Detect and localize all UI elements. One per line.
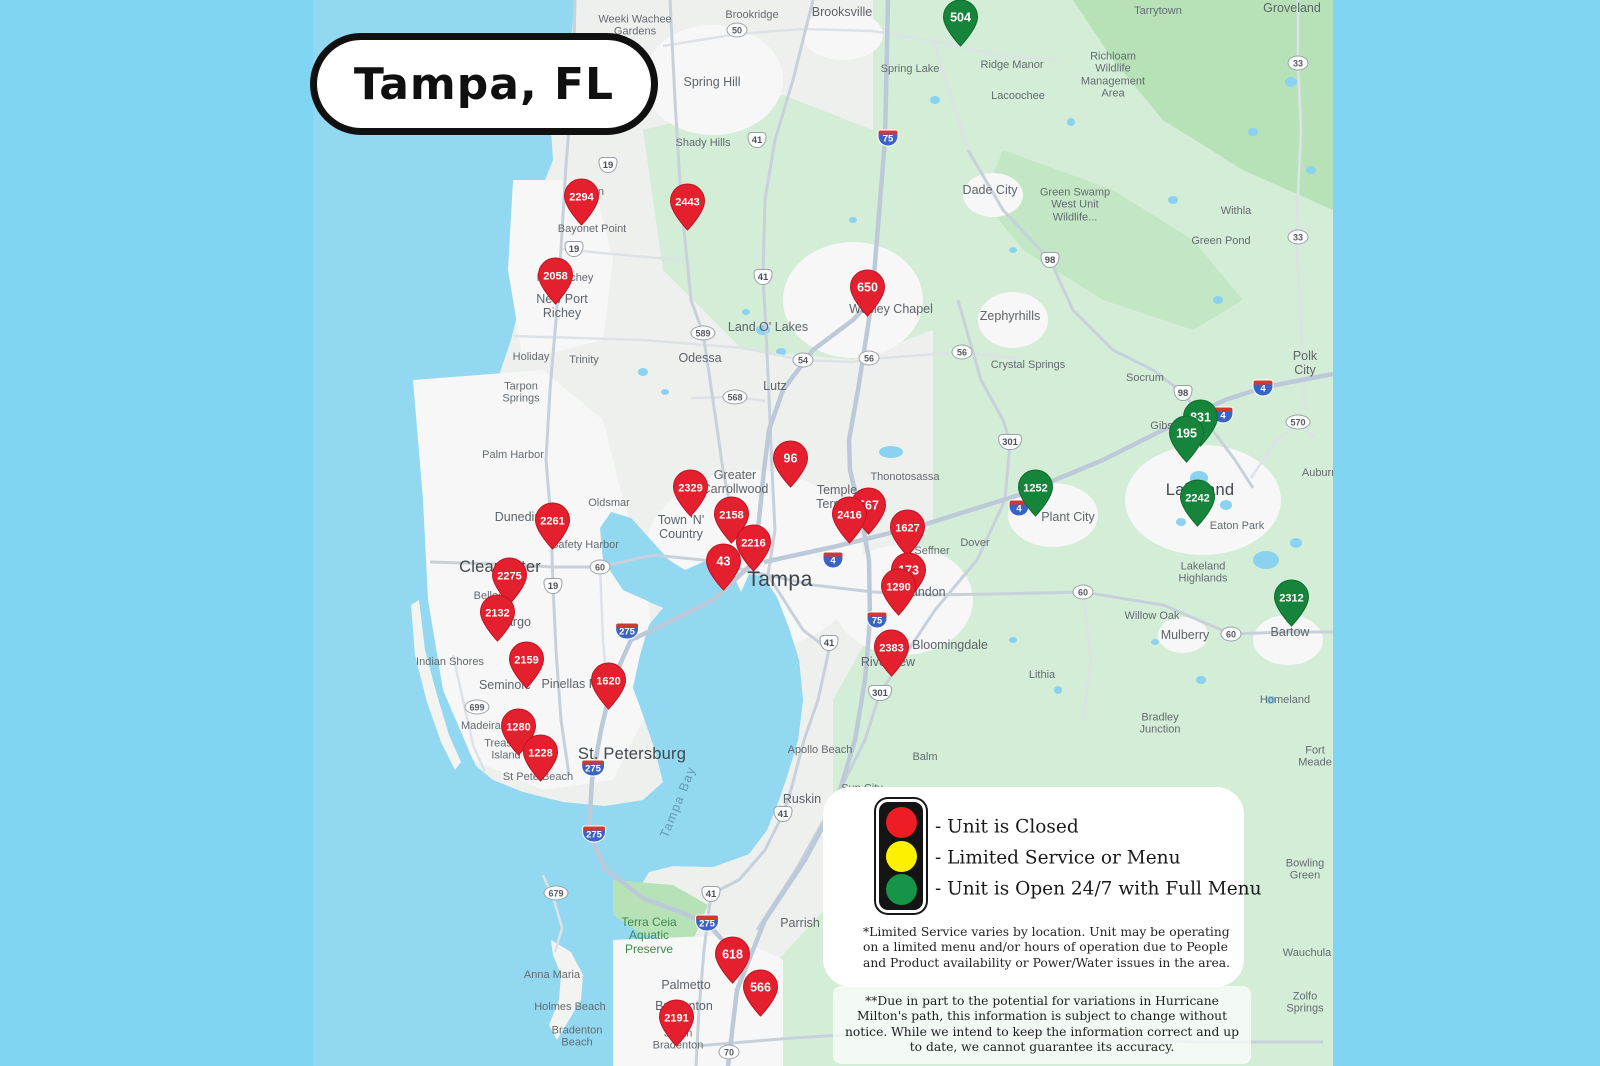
map-pin-1228[interactable]: 1228	[522, 734, 559, 782]
map-pin-504[interactable]: 504	[942, 0, 979, 47]
map-pin-1620[interactable]: 1620	[590, 662, 627, 710]
svg-text:1290: 1290	[886, 582, 910, 594]
svg-text:618: 618	[722, 948, 743, 962]
urban-brooksville	[803, 10, 883, 60]
svg-text:650: 650	[857, 281, 878, 295]
state-route-568-shield: 568	[722, 390, 747, 405]
state-route-54-shield: 54	[793, 353, 814, 368]
state-route-56-shield: 56	[859, 351, 880, 366]
svg-text:2132: 2132	[485, 608, 509, 620]
map-pin-43[interactable]: 43	[705, 543, 742, 591]
map-pin-2443[interactable]: 2443	[669, 183, 706, 231]
yellow-light-icon	[886, 841, 917, 872]
legend-footnote-limited: *Limited Service varies by location. Uni…	[863, 925, 1235, 971]
state-route-33-shield: 33	[1288, 230, 1309, 245]
map-pin-650[interactable]: 650	[849, 269, 886, 317]
svg-text:1620: 1620	[596, 676, 620, 688]
map-pin-2058[interactable]: 2058	[537, 257, 574, 305]
map-pin-566[interactable]: 566	[742, 969, 779, 1017]
svg-text:96: 96	[784, 452, 798, 466]
title-badge: Tampa, FL	[310, 33, 658, 135]
svg-text:2443: 2443	[675, 197, 699, 209]
svg-text:43: 43	[717, 555, 731, 569]
map-pin-2312[interactable]: 2312	[1273, 579, 1310, 627]
state-route-570-shield: 570	[1285, 415, 1310, 430]
map-pin-2383[interactable]: 2383	[873, 629, 910, 677]
map-pin-1627[interactable]: 1627	[889, 509, 926, 557]
map-pin-96[interactable]: 96	[772, 440, 809, 488]
map-pin-195[interactable]: 195	[1168, 415, 1205, 463]
svg-text:1252: 1252	[1023, 483, 1047, 495]
svg-text:2275: 2275	[497, 571, 521, 583]
state-route-50-shield: 50	[727, 23, 748, 38]
svg-text:504: 504	[950, 11, 971, 25]
state-route-70-shield: 70	[719, 1045, 740, 1060]
state-route-33-shield: 33	[1288, 56, 1309, 71]
map-pin-2261[interactable]: 2261	[534, 502, 571, 550]
svg-text:1228: 1228	[528, 748, 552, 760]
title-badge-text: Tampa, FL	[354, 59, 614, 110]
svg-text:2242: 2242	[1185, 493, 1209, 505]
svg-text:1627: 1627	[895, 523, 919, 535]
svg-text:2312: 2312	[1279, 593, 1303, 605]
state-route-699-shield: 699	[464, 700, 489, 715]
svg-text:2058: 2058	[543, 271, 567, 283]
map-pin-2242[interactable]: 2242	[1179, 479, 1216, 527]
svg-text:195: 195	[1176, 427, 1197, 441]
traffic-light-icon	[876, 799, 926, 913]
tampa-status-map-page: Weeki Wachee GardensBrookridgeBrooksvill…	[0, 0, 1600, 1066]
map-pin-2416[interactable]: 2416	[831, 496, 868, 544]
legend-closed-label: - Unit is Closed	[935, 817, 1079, 838]
map-pin-1252[interactable]: 1252	[1017, 469, 1054, 517]
svg-text:2159: 2159	[514, 655, 538, 667]
map-pin-2159[interactable]: 2159	[508, 641, 545, 689]
map-pin-1290[interactable]: 1290	[880, 568, 917, 616]
svg-text:566: 566	[750, 981, 771, 995]
legend-box: - Unit is Closed - Limited Service or Me…	[823, 787, 1244, 987]
map-pin-2191[interactable]: 2191	[658, 999, 695, 1047]
state-route-56-shield: 56	[952, 345, 973, 360]
svg-text:2329: 2329	[678, 483, 702, 495]
state-route-60-shield: 60	[1221, 627, 1242, 642]
urban-spring-hill	[643, 25, 783, 135]
map-pin-2294[interactable]: 2294	[563, 178, 600, 226]
green-light-icon	[886, 874, 917, 905]
urban-zephyrhills	[978, 292, 1048, 348]
red-light-icon	[886, 807, 917, 838]
svg-text:2158: 2158	[719, 510, 743, 522]
svg-text:2294: 2294	[569, 192, 594, 204]
map-pin-2132[interactable]: 2132	[479, 594, 516, 642]
svg-text:2191: 2191	[664, 1013, 688, 1025]
svg-text:2216: 2216	[741, 538, 765, 550]
svg-text:2261: 2261	[540, 516, 564, 528]
svg-text:2416: 2416	[837, 510, 861, 522]
legend-open-label: - Unit is Open 24/7 with Full Menu	[935, 879, 1262, 900]
state-route-589-shield: 589	[690, 326, 715, 341]
svg-text:2383: 2383	[879, 643, 903, 655]
state-route-60-shield: 60	[590, 560, 611, 575]
map-pin-2329[interactable]: 2329	[672, 469, 709, 517]
state-route-60-shield: 60	[1073, 585, 1094, 600]
state-route-679-shield: 679	[543, 886, 568, 901]
legend-limited-label: - Limited Service or Menu	[935, 848, 1181, 869]
hurricane-disclaimer: **Due in part to the potential for varia…	[833, 986, 1251, 1064]
svg-text:1280: 1280	[506, 722, 530, 734]
